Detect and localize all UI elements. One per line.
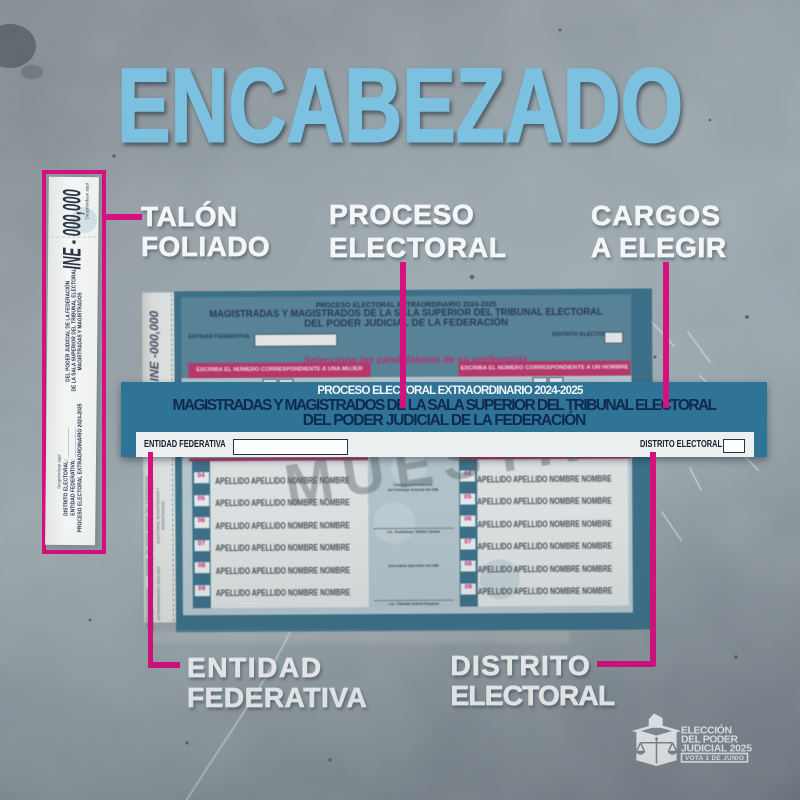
svg-text:VOTA 1 DE JUNIO: VOTA 1 DE JUNIO	[685, 755, 744, 762]
svg-text:ENCABEZADO: ENCABEZADO	[117, 48, 683, 165]
